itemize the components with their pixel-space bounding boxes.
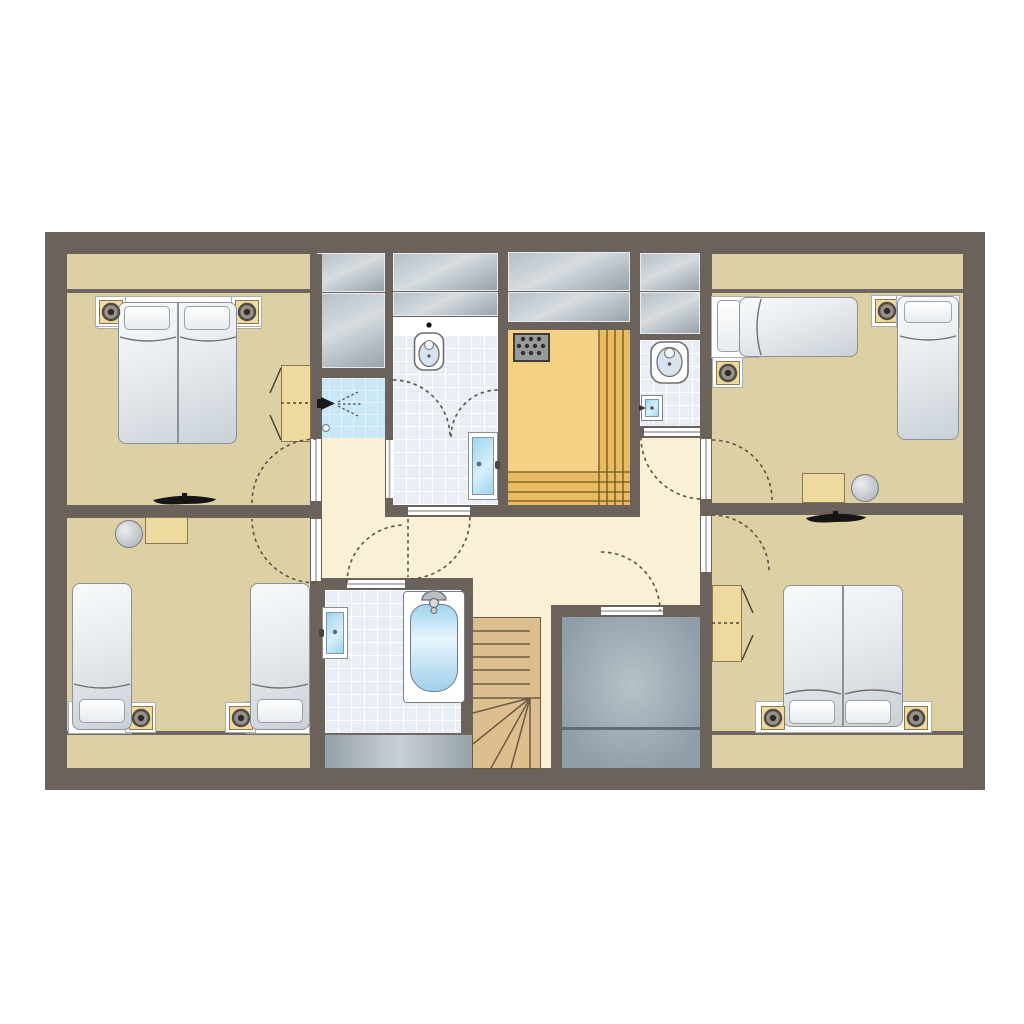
pillow bbox=[904, 301, 952, 323]
wall bbox=[712, 503, 963, 515]
door-threshold bbox=[408, 507, 470, 515]
skylight-block bbox=[317, 253, 385, 292]
door-threshold bbox=[311, 439, 321, 501]
wardrobe bbox=[712, 585, 742, 662]
storage-knee-line bbox=[562, 727, 702, 730]
door-threshold bbox=[311, 519, 321, 581]
washbasin-bowl bbox=[645, 399, 659, 417]
desk bbox=[802, 473, 845, 503]
wall bbox=[67, 505, 310, 518]
pillow bbox=[789, 700, 835, 724]
pillow bbox=[124, 306, 170, 330]
sauna-glass-door-pane bbox=[472, 437, 494, 495]
nightstand-top bbox=[235, 300, 259, 324]
pillow bbox=[257, 699, 303, 723]
single-bed bbox=[739, 297, 858, 357]
door-threshold bbox=[701, 439, 711, 499]
nightstand-top bbox=[904, 706, 928, 730]
storage-room bbox=[562, 617, 702, 768]
nightstand-top bbox=[716, 361, 740, 385]
floor-plan-page bbox=[0, 0, 1024, 1024]
bathroom-counter bbox=[393, 317, 498, 335]
skylight-block bbox=[640, 253, 700, 291]
staircase bbox=[473, 618, 540, 768]
pillow bbox=[845, 700, 891, 724]
pillow bbox=[184, 306, 230, 330]
bed-divider bbox=[177, 303, 179, 443]
knee-wall-line bbox=[712, 289, 963, 293]
wardrobe bbox=[281, 365, 311, 442]
skylight-block bbox=[393, 292, 498, 316]
floor-plan bbox=[45, 232, 985, 790]
pillow bbox=[79, 699, 125, 723]
bathroom-glass-door-pane bbox=[326, 612, 344, 654]
wall bbox=[498, 253, 508, 517]
shower-cabin bbox=[317, 378, 385, 438]
door-threshold bbox=[644, 428, 700, 436]
nightstand-top bbox=[761, 706, 785, 730]
desk bbox=[145, 517, 188, 544]
sauna-heater-icon bbox=[513, 333, 550, 362]
bed-divider bbox=[842, 586, 844, 726]
skylight-block bbox=[317, 293, 385, 368]
hallway-stair-strip bbox=[540, 618, 551, 768]
nightstand-top bbox=[129, 706, 153, 730]
stool bbox=[115, 520, 143, 548]
sauna-bench-bottom bbox=[508, 472, 630, 505]
skylight-block bbox=[393, 253, 498, 291]
stool bbox=[851, 474, 879, 502]
door-threshold bbox=[601, 607, 663, 615]
skylight-block bbox=[508, 252, 630, 291]
door-threshold bbox=[701, 516, 711, 572]
eaves-storage-strip bbox=[325, 733, 473, 768]
pillow bbox=[717, 300, 741, 352]
bathtub-basin bbox=[410, 604, 458, 692]
wall bbox=[551, 617, 562, 768]
knee-wall-line bbox=[67, 289, 310, 293]
door-threshold bbox=[386, 440, 393, 498]
door-threshold bbox=[347, 580, 405, 588]
skylight-block bbox=[640, 292, 700, 334]
skylight-block bbox=[508, 292, 630, 322]
wall bbox=[630, 253, 640, 517]
